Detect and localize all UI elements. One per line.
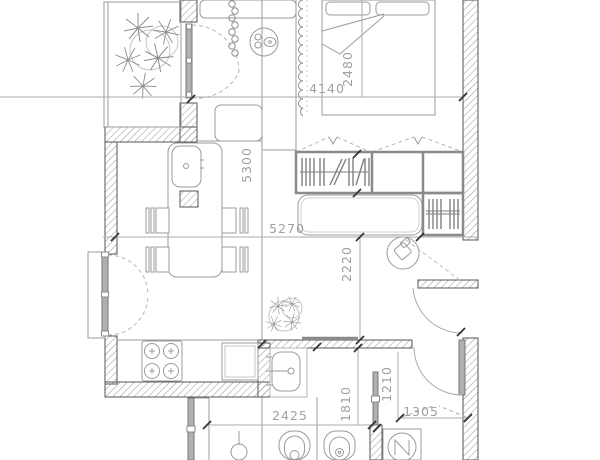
washing-machine-icon: [383, 429, 421, 460]
dim-text-2220: 2220: [339, 246, 354, 282]
hall-door-leaf: [459, 340, 465, 395]
kitchen: [117, 143, 258, 381]
bed-pillow-left: [326, 2, 370, 15]
wall-right-upper: [463, 0, 478, 240]
wardrobe-door-peaks: [329, 137, 422, 144]
wall-top-pier: [180, 0, 197, 22]
wardrobe-carcass: [296, 152, 463, 193]
shoe-rack-hangers-icon: [426, 199, 460, 229]
island-column: [180, 191, 198, 207]
cooktop: [142, 341, 182, 381]
glazed-door-swing: [192, 25, 239, 98]
washbasin-drain: [288, 368, 294, 374]
wall-entry: [418, 280, 478, 288]
french-door-swing: [108, 255, 148, 335]
dim-text-1210: 1210: [379, 366, 394, 402]
entrance-door-arc: [413, 288, 462, 333]
bathroom-plant-icon: [264, 293, 303, 334]
balcony-glazing: [104, 2, 181, 127]
dim-text-1305: 1305: [403, 404, 439, 419]
wardrobe: [296, 137, 463, 235]
bed-pillow-right: [376, 2, 429, 15]
window-curtain-icon: [299, 0, 304, 116]
bedroom-desk: [200, 0, 296, 18]
double-bed: [322, 0, 435, 115]
wardrobe-door-swing: [296, 137, 463, 152]
hallway-cabinet: [215, 105, 262, 141]
kitchen-island: [168, 143, 222, 277]
floor-plan-canvas: 4140 2480 5300 5270 2220 2425 1810 1210 …: [0, 0, 600, 460]
oven-inner: [225, 346, 255, 377]
dim-text-5270: 5270: [269, 221, 305, 236]
wall-balcony-sill: [105, 127, 197, 142]
floor-plan-drawing: 4140 2480 5300 5270 2220 2425 1810 1210 …: [0, 0, 600, 460]
duvet-fold: [322, 14, 384, 54]
dim-text-1810: 1810: [338, 386, 353, 422]
dim-text-5300: 5300: [239, 147, 254, 183]
round-side-table: [250, 28, 278, 56]
bidet: [324, 431, 355, 460]
toilet: [279, 431, 310, 460]
hall: [387, 237, 465, 395]
cooktop-burners: [145, 344, 179, 379]
wall-bath-top: [258, 340, 412, 348]
bead-curtain-icon: [229, 1, 238, 56]
dim-text-2480: 2480: [340, 51, 355, 87]
armchair-icon: [387, 237, 419, 269]
dim-text-2425: 2425: [272, 408, 308, 423]
wall-kitchen-bottom: [105, 382, 270, 397]
floor-pedestal: [231, 444, 247, 460]
wall-bath-left: [258, 343, 270, 397]
bench-sofa: [298, 195, 422, 235]
balcony-plant-icon: [112, 13, 183, 101]
bedroom: [200, 0, 435, 141]
oven: [222, 343, 258, 380]
hall-door-arc: [414, 347, 462, 395]
wall-left-lower: [105, 336, 117, 384]
entrance-door-dash: [406, 240, 461, 281]
wardrobe-hangers-icon: [300, 158, 369, 186]
